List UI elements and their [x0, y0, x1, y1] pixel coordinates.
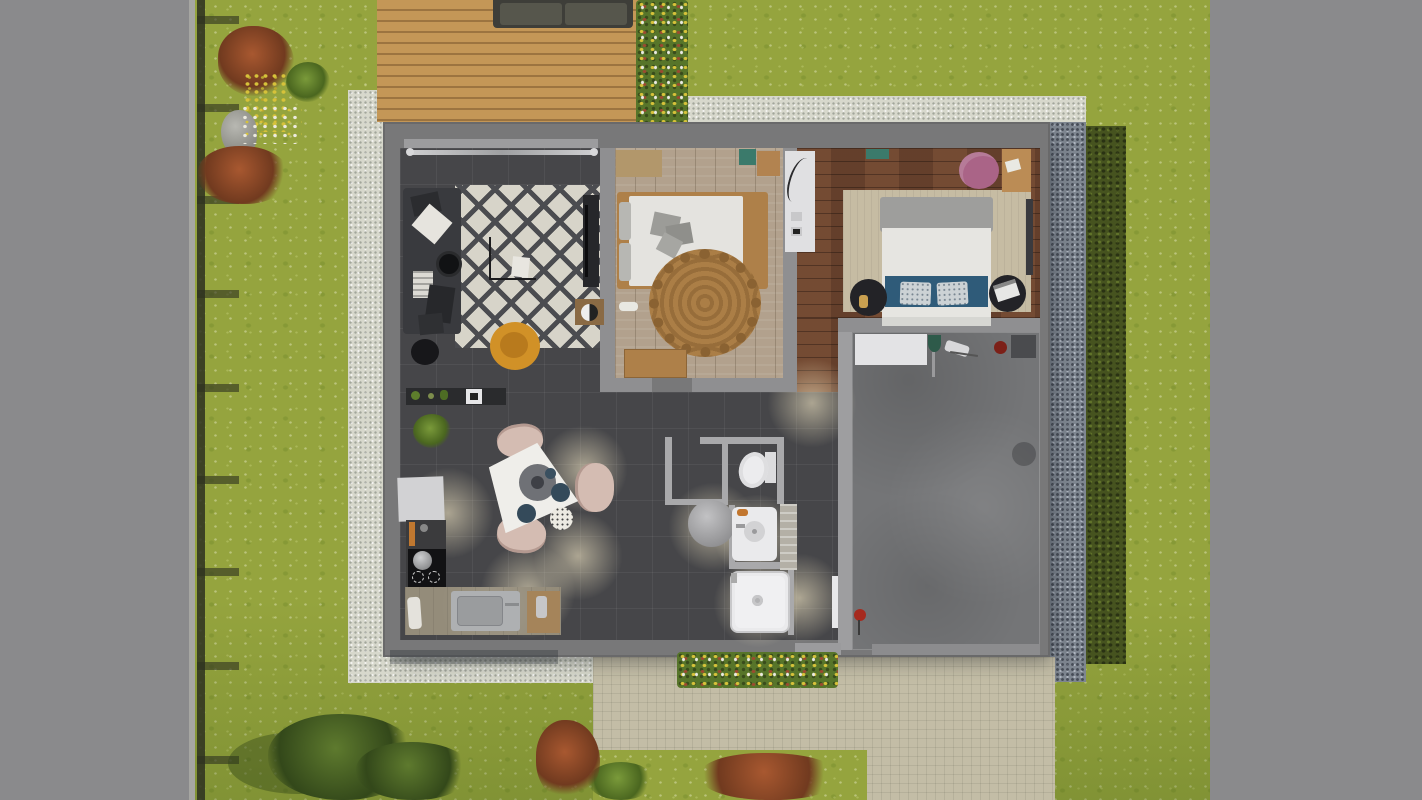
serving-tray-center [531, 476, 544, 489]
fence-rail-shadow [197, 16, 239, 24]
entry-door-leaf [832, 576, 838, 628]
teal-shelf [866, 149, 889, 159]
pillow [619, 243, 631, 281]
bed-bench [624, 349, 687, 378]
laundry-bin [688, 500, 735, 547]
outdoor-sofa-cushion [565, 3, 627, 25]
navy-plate [517, 504, 536, 523]
broom-handle [932, 352, 935, 377]
washbasin-drain [752, 529, 757, 534]
fence-rail-shadow [197, 568, 239, 576]
garage-floor [852, 332, 1040, 650]
wall-bedrooms-hall [600, 378, 652, 392]
mustard-armchair-seat [500, 332, 528, 358]
sideboard-plant [428, 393, 434, 399]
sink-basin [457, 596, 503, 626]
red-bush [198, 146, 290, 204]
broom-head [928, 335, 941, 352]
black-side-table [411, 339, 439, 365]
fire-extinguisher-hose [858, 620, 860, 635]
floor-lamp-arm [489, 278, 536, 280]
floor-lamp [489, 237, 491, 280]
jar [420, 524, 428, 532]
slippers [619, 302, 638, 311]
bed2-cushion [936, 281, 968, 306]
hedge [1086, 126, 1126, 664]
fridge [397, 476, 445, 522]
faucet [505, 603, 519, 606]
headboard [880, 197, 993, 232]
cooking-pot [413, 551, 432, 570]
bottle [536, 596, 547, 618]
fence-rail-shadow [197, 662, 239, 670]
outdoor-sofa [493, 0, 633, 28]
floor-paper [511, 256, 530, 278]
wall-bedrooms-hall [692, 378, 788, 392]
potted-plant [413, 414, 451, 448]
workbench [855, 334, 927, 365]
red-bush [700, 753, 842, 800]
green-plant [286, 62, 330, 102]
fence-rail-shadow [197, 290, 239, 298]
gravel-strip-right [1050, 122, 1086, 682]
curtain-rail-knob [406, 148, 414, 156]
nightstand [757, 151, 780, 176]
garden-tree [356, 742, 472, 800]
tv-screen [585, 205, 588, 277]
bedroom2-floor-extension [797, 318, 838, 392]
red-bucket-lid [994, 341, 1007, 354]
concrete-stain [1012, 442, 1036, 466]
mauve-chair [959, 152, 999, 189]
house-shadow-strip [390, 650, 558, 664]
wardrobe-handle [791, 227, 802, 236]
wardrobe-handle [791, 212, 802, 221]
bed2-foot-strip [882, 317, 991, 326]
navy-plate [545, 468, 556, 479]
fence-rail-shadow [197, 476, 239, 484]
curtain-rail-knob [590, 148, 598, 156]
pillow [619, 202, 631, 240]
soap [737, 509, 748, 516]
dining-chair [575, 463, 614, 512]
lit-tile-strip [780, 504, 797, 570]
red-bush [536, 720, 600, 800]
decor-plate [581, 304, 598, 321]
outdoor-sofa-cushion [500, 3, 562, 25]
window-blind [1026, 199, 1033, 275]
gravel-border-left [348, 90, 385, 683]
sideboard [406, 388, 506, 405]
white-flowers [240, 104, 302, 144]
curtain-rail [408, 150, 596, 155]
hob-ring [412, 571, 424, 583]
flower-bed-deck [636, 0, 688, 127]
floorplan-render [0, 0, 1422, 800]
patterned-plate [550, 507, 573, 530]
flower-bed-front [677, 652, 838, 688]
curb-line [189, 0, 195, 800]
sideboard-frame [466, 389, 482, 404]
gravel-border-top [686, 96, 1086, 124]
carrots [409, 522, 415, 546]
sofa-throw [418, 313, 444, 335]
fence [197, 0, 205, 800]
window-sill [404, 139, 598, 148]
fire-extinguisher [854, 609, 866, 621]
garage-door [872, 644, 1040, 655]
towel [407, 597, 422, 630]
floor-mat [1011, 335, 1036, 358]
round-jute-rug [649, 249, 761, 357]
round-coffee-table [436, 251, 462, 277]
shower-drain [752, 595, 763, 606]
shower-hinge [731, 573, 737, 583]
sideboard-plant [411, 391, 420, 400]
navy-plate [551, 483, 570, 502]
wall-garage-hall [838, 332, 852, 650]
sideboard-plant [440, 390, 448, 400]
nightstand-lamp [859, 295, 868, 308]
hob-ring [428, 571, 440, 583]
bed2-cushion [900, 281, 932, 305]
wall-living-bedroom1 [600, 148, 615, 392]
fence-rail-shadow [197, 384, 239, 392]
washbasin-faucet [736, 524, 745, 528]
round-nightstand [850, 279, 887, 316]
dresser [616, 150, 662, 177]
teal-wall-shelf [739, 149, 756, 165]
